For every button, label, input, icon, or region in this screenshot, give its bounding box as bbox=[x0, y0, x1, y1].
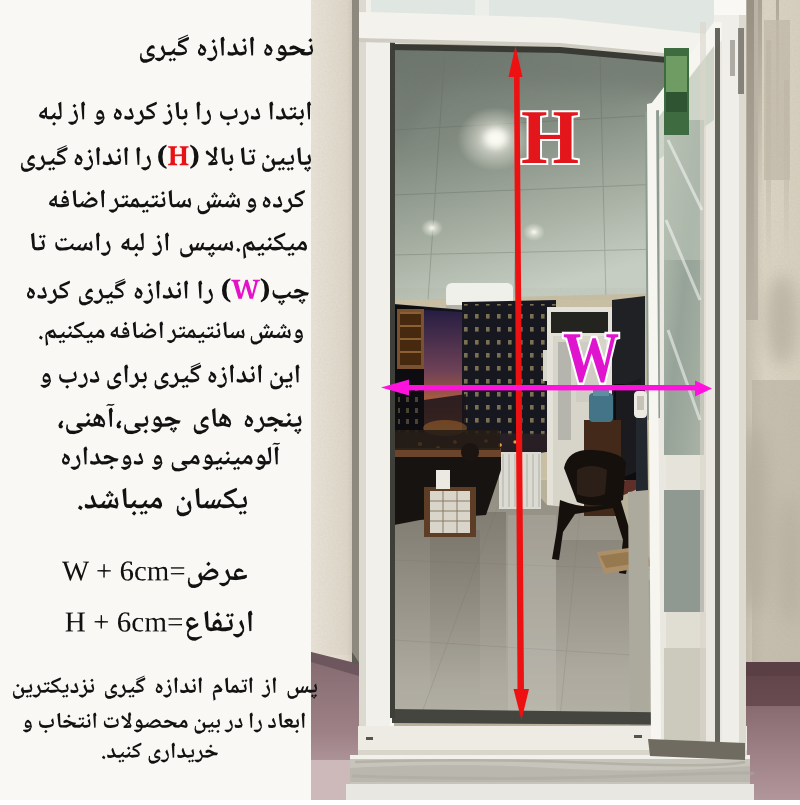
svg-text:W: W bbox=[563, 317, 619, 397]
svg-text:H: H bbox=[521, 95, 579, 180]
